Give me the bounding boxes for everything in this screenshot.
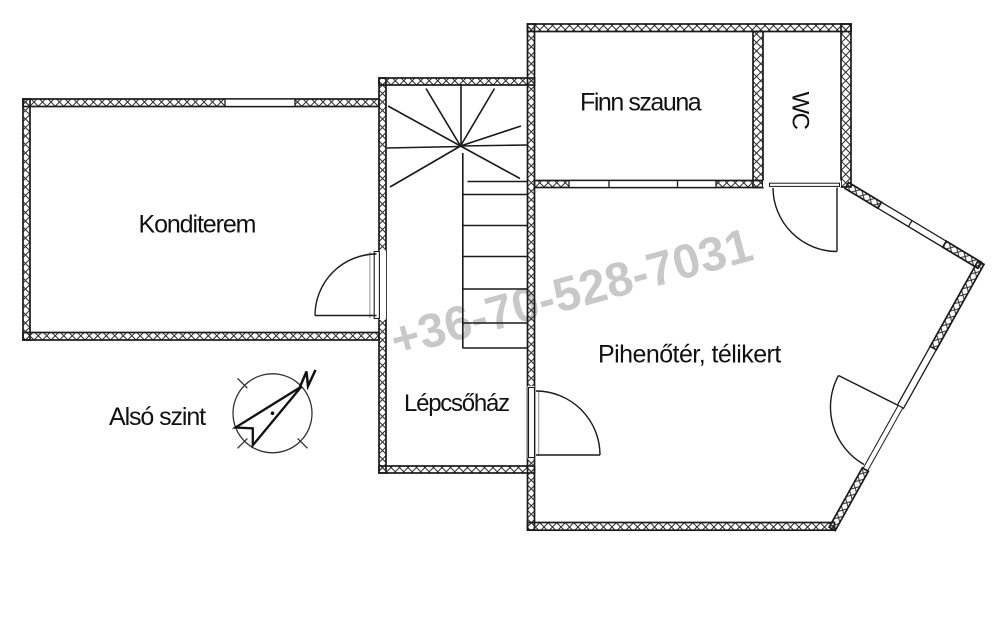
svg-text:Finn szauna: Finn szauna bbox=[580, 89, 702, 117]
svg-text:Alsó szint: Alsó szint bbox=[109, 403, 206, 431]
svg-text:Lépcsőház: Lépcsőház bbox=[404, 390, 509, 417]
svg-text:Pihenőtér, télikert: Pihenőtér, télikert bbox=[598, 341, 781, 369]
svg-text:Konditerem: Konditerem bbox=[139, 211, 256, 239]
svg-text:WC: WC bbox=[787, 92, 814, 130]
